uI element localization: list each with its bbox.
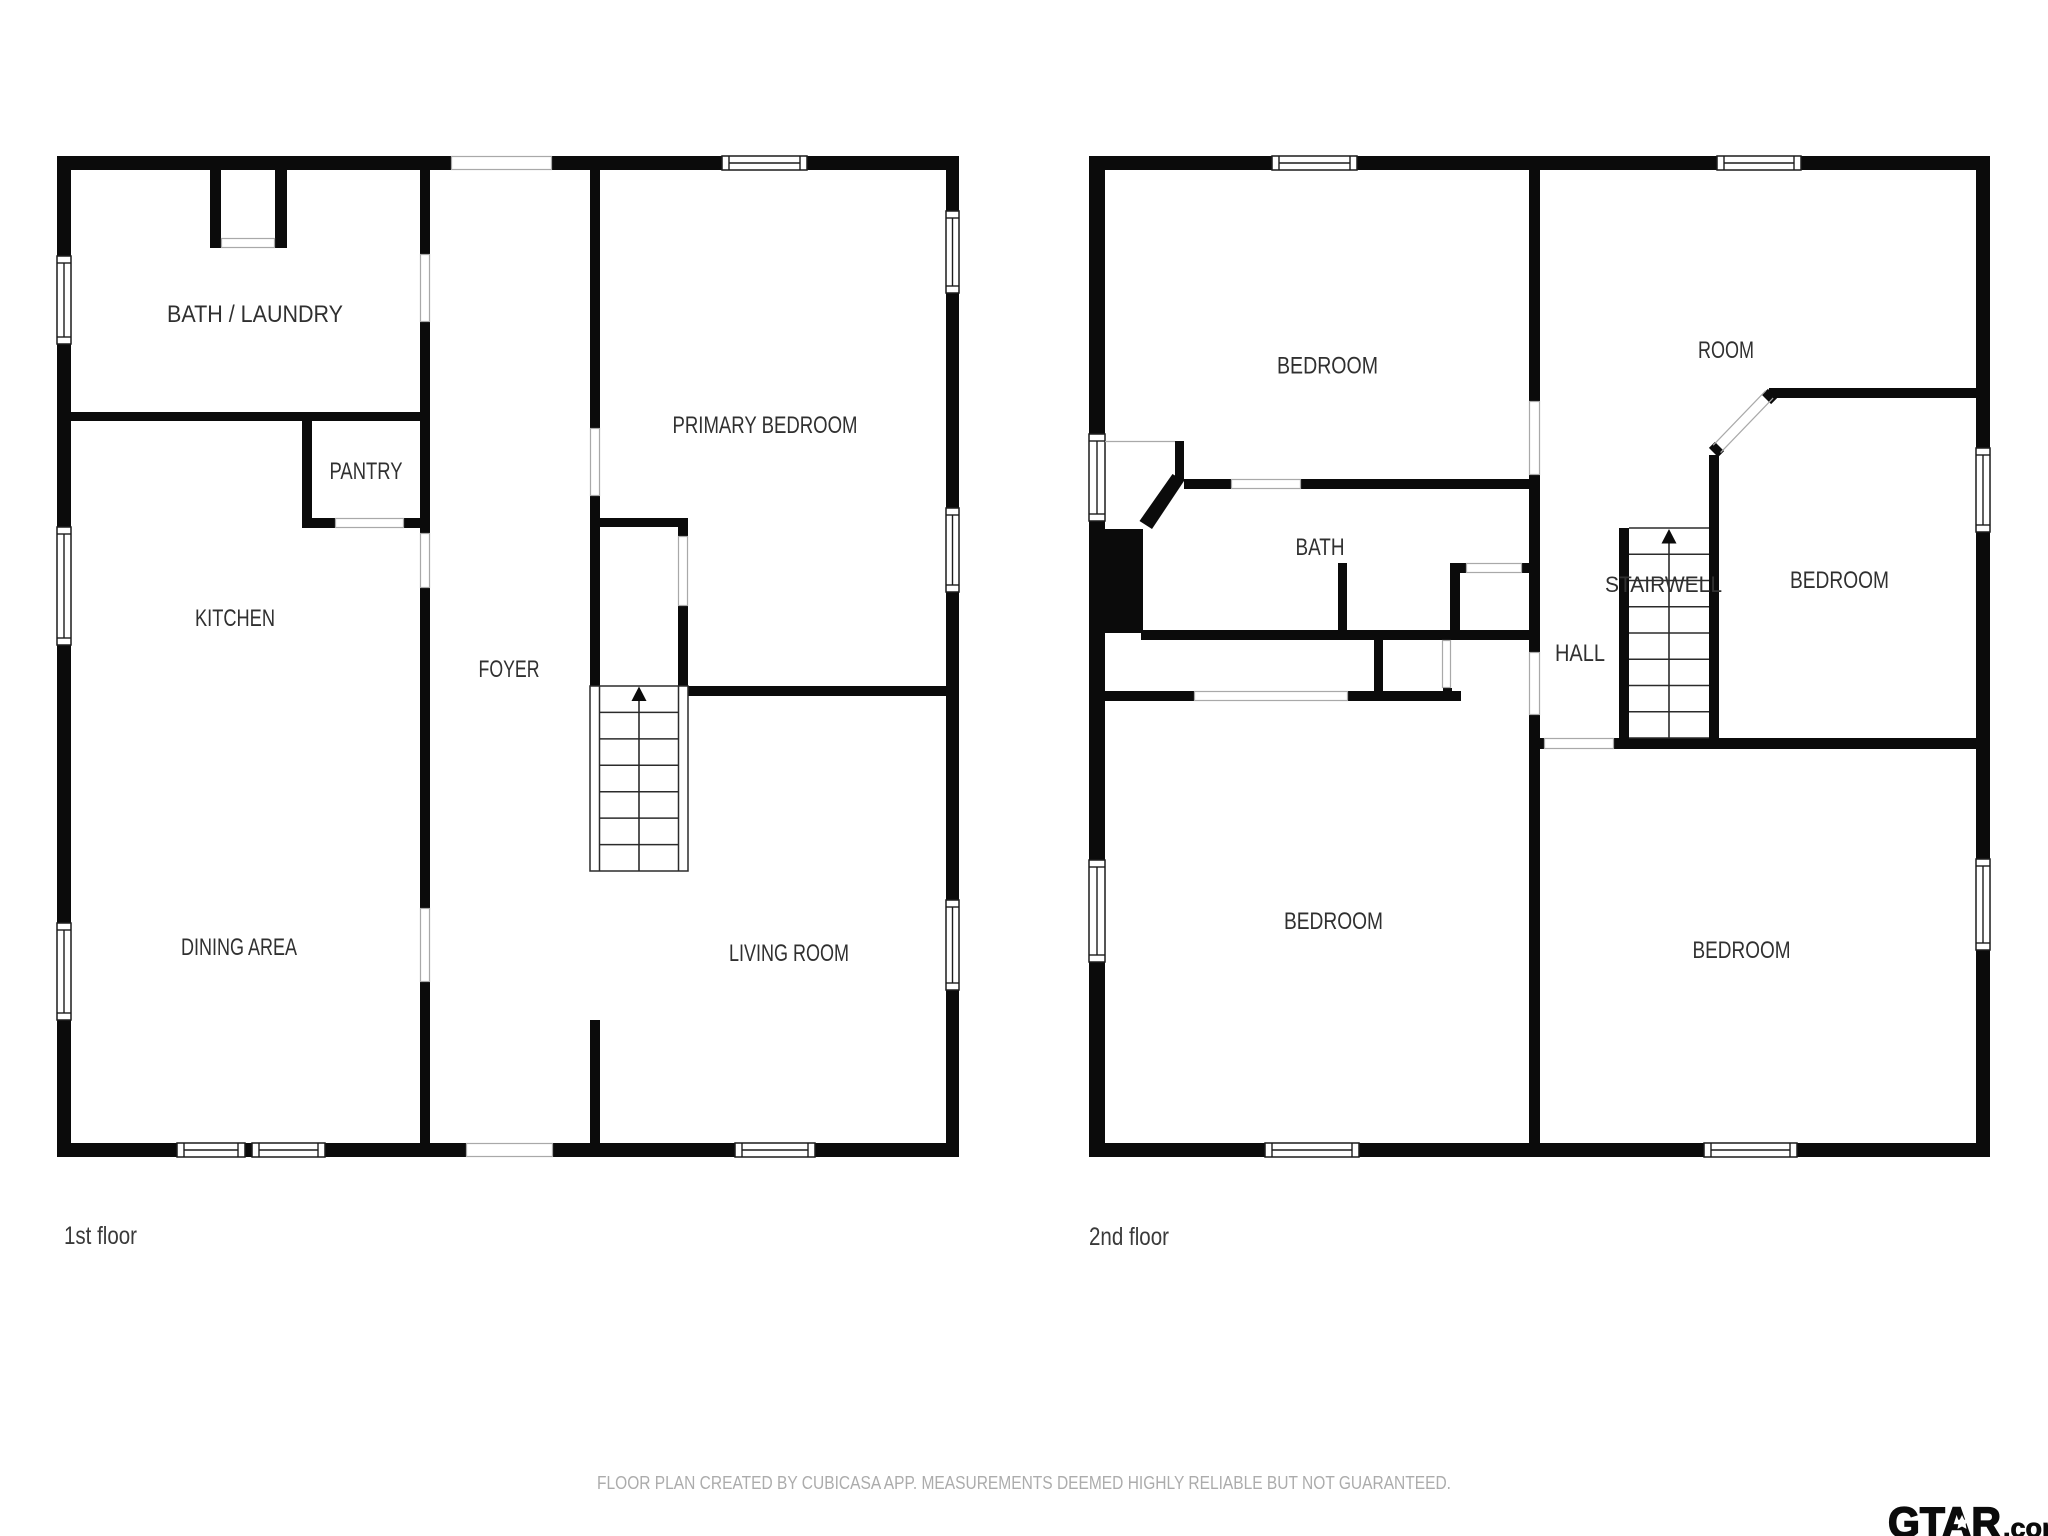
svg-text:GTAR: GTAR: [1888, 1499, 2001, 1536]
svg-text:STAIRWELL: STAIRWELL: [1605, 572, 1722, 597]
svg-text:FLOOR PLAN CREATED BY CUBICASA: FLOOR PLAN CREATED BY CUBICASA APP. MEAS…: [597, 1472, 1451, 1493]
svg-text:BEDROOM: BEDROOM: [1277, 353, 1378, 380]
svg-text:2nd floor: 2nd floor: [1089, 1223, 1169, 1251]
svg-text:DINING AREA: DINING AREA: [181, 934, 297, 961]
svg-text:BEDROOM: BEDROOM: [1284, 908, 1383, 935]
svg-text:BEDROOM: BEDROOM: [1693, 937, 1791, 964]
svg-text:ROOM: ROOM: [1698, 337, 1754, 364]
svg-text:1st floor: 1st floor: [64, 1222, 137, 1250]
svg-text:PANTRY: PANTRY: [330, 458, 403, 485]
svg-text:BATH: BATH: [1296, 534, 1345, 561]
svg-text:KITCHEN: KITCHEN: [195, 605, 275, 632]
svg-text:LIVING ROOM: LIVING ROOM: [729, 940, 849, 967]
svg-text:PRIMARY BEDROOM: PRIMARY BEDROOM: [673, 412, 858, 439]
svg-text:BATH / LAUNDRY: BATH / LAUNDRY: [167, 301, 343, 328]
svg-text:.com: .com: [2003, 1513, 2048, 1536]
svg-text:FOYER: FOYER: [479, 656, 540, 683]
svg-text:BEDROOM: BEDROOM: [1790, 567, 1889, 594]
svg-text:HALL: HALL: [1555, 640, 1605, 667]
